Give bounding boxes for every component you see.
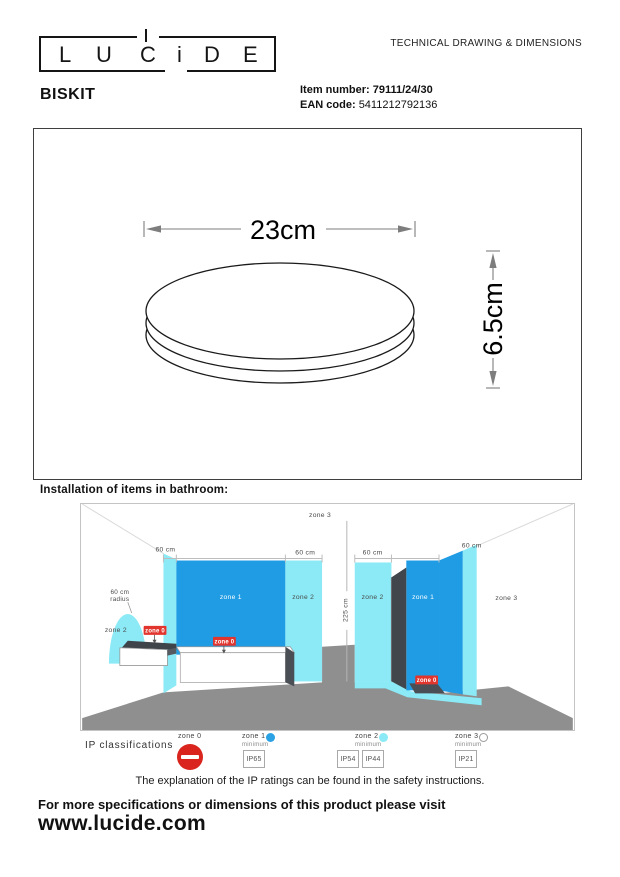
width-dimension-label: 23cm [250, 215, 316, 245]
bathroom-section-heading: Installation of items in bathroom: [40, 484, 228, 496]
dim60-bathtub-label: 60 cm [295, 550, 315, 557]
zone2-left-wall-strip [163, 554, 176, 694]
bathroom-zones-diagram: 225 cm zone 3 60 cm 60 cm 60 cm 60 cm 60… [80, 503, 575, 731]
zone2-basin-label: zone 2 [105, 627, 127, 634]
ip-zone2-minimum: minimum [355, 742, 381, 748]
website-url: www.lucide.com [38, 812, 206, 836]
dim60-left-label: 60 cm [156, 547, 176, 554]
bathroom-scene: 225 cm zone 3 60 cm 60 cm 60 cm 60 cm 60… [81, 504, 574, 730]
logo-letter: E [243, 42, 258, 68]
logo-letter: i [177, 42, 182, 68]
zone0-badge-shower: zone 0 [415, 675, 438, 684]
product-name: BISKIT [40, 86, 95, 104]
bathtub [176, 647, 294, 687]
zone0-badge-bathtub-label: zone 0 [215, 640, 235, 646]
dim60-shower-label: 60 cm [363, 550, 383, 557]
zone2-shower-label: zone 2 [362, 594, 384, 601]
zone2-shower-wall-strip [355, 562, 392, 681]
floor [82, 682, 573, 730]
shower-panel [391, 567, 406, 689]
height-dimension-label: 6.5cm [478, 282, 508, 356]
dimension-drawing-box: 23cm 6.5cm [33, 128, 582, 480]
zone2-side-wall-strip [463, 545, 477, 697]
logo-letter: D [204, 42, 220, 68]
radius-label-line1: 60 cm [110, 589, 129, 596]
ean-label: EAN code: [300, 99, 356, 111]
radius-label-line2: radius [110, 596, 129, 603]
ceiling-lamp-drawing [146, 263, 414, 383]
zone1-shower-side-wall [439, 551, 463, 695]
item-number-value: 79111/24/30 [373, 84, 433, 96]
ip-rating-ip44: IP44 [362, 750, 384, 768]
ip-rating-ip54: IP54 [337, 750, 359, 768]
logo-accent-stroke [145, 29, 147, 42]
zone2-color-dot-icon [379, 733, 388, 742]
logo-letter: U [96, 42, 112, 68]
zone3-right-wall-label: zone 3 [495, 595, 517, 602]
technical-drawing-page: L U C i D E TECHNICAL DRAWING & DIMENSIO… [0, 0, 620, 877]
zone2-bathtub-label: zone 2 [292, 594, 314, 601]
ip-zone3-name: zone 3 [455, 733, 478, 740]
ip-zone3-minimum: minimum [455, 742, 481, 748]
dim60-corner-label: 60 cm [462, 543, 482, 550]
no-entry-icon [177, 744, 203, 770]
ip-zone2-name: zone 2 [355, 733, 378, 740]
ip-rating-ip65: IP65 [243, 750, 265, 768]
zone3-ceiling-label: zone 3 [309, 512, 331, 519]
item-number-label: Item number: [300, 84, 370, 96]
ean-value: 5411212792136 [359, 99, 438, 111]
zone1-bathtub-label: zone 1 [220, 594, 242, 601]
document-title: TECHNICAL DRAWING & DIMENSIONS [390, 38, 582, 49]
height-225-label: 225 cm [342, 598, 349, 622]
ip-rating-ip21: IP21 [455, 750, 477, 768]
zone3-color-dot-icon [479, 733, 488, 742]
zone0-badge-shower-label: zone 0 [417, 678, 437, 684]
logo-border-gap-bottom [165, 69, 187, 73]
lamp-dimension-drawing: 23cm 6.5cm [34, 129, 581, 479]
doorway-floor [322, 645, 355, 692]
logo-border-gap-top [137, 35, 159, 39]
logo-letter: C [140, 42, 156, 68]
ip-zone1-minimum: minimum [242, 742, 268, 748]
radius-leader-line [128, 602, 132, 613]
logo-letter: L [59, 42, 71, 68]
zone0-badge-basin: zone 0 [144, 626, 167, 644]
ip-classifications-title: IP classifications [85, 740, 173, 751]
footer-text: For more specifications or dimensions of… [38, 797, 445, 812]
zone1-color-dot-icon [266, 733, 275, 742]
lamp-top-face [146, 263, 414, 359]
ceiling-edge-left [82, 504, 163, 554]
zone1-shower-back-wall [406, 561, 439, 691]
item-number-line: Item number: 79111/24/30 [300, 84, 433, 96]
ip-ratings-note: The explanation of the IP ratings can be… [0, 775, 620, 787]
ean-line: EAN code: 5411212792136 [300, 99, 437, 111]
lucide-logo: L U C i D E [39, 36, 276, 72]
zone1-shower-label: zone 1 [412, 594, 434, 601]
ip-zone1-name: zone 1 [242, 733, 265, 740]
zone0-badge-basin-label: zone 0 [145, 629, 165, 635]
ip-zone0-name: zone 0 [178, 733, 201, 740]
